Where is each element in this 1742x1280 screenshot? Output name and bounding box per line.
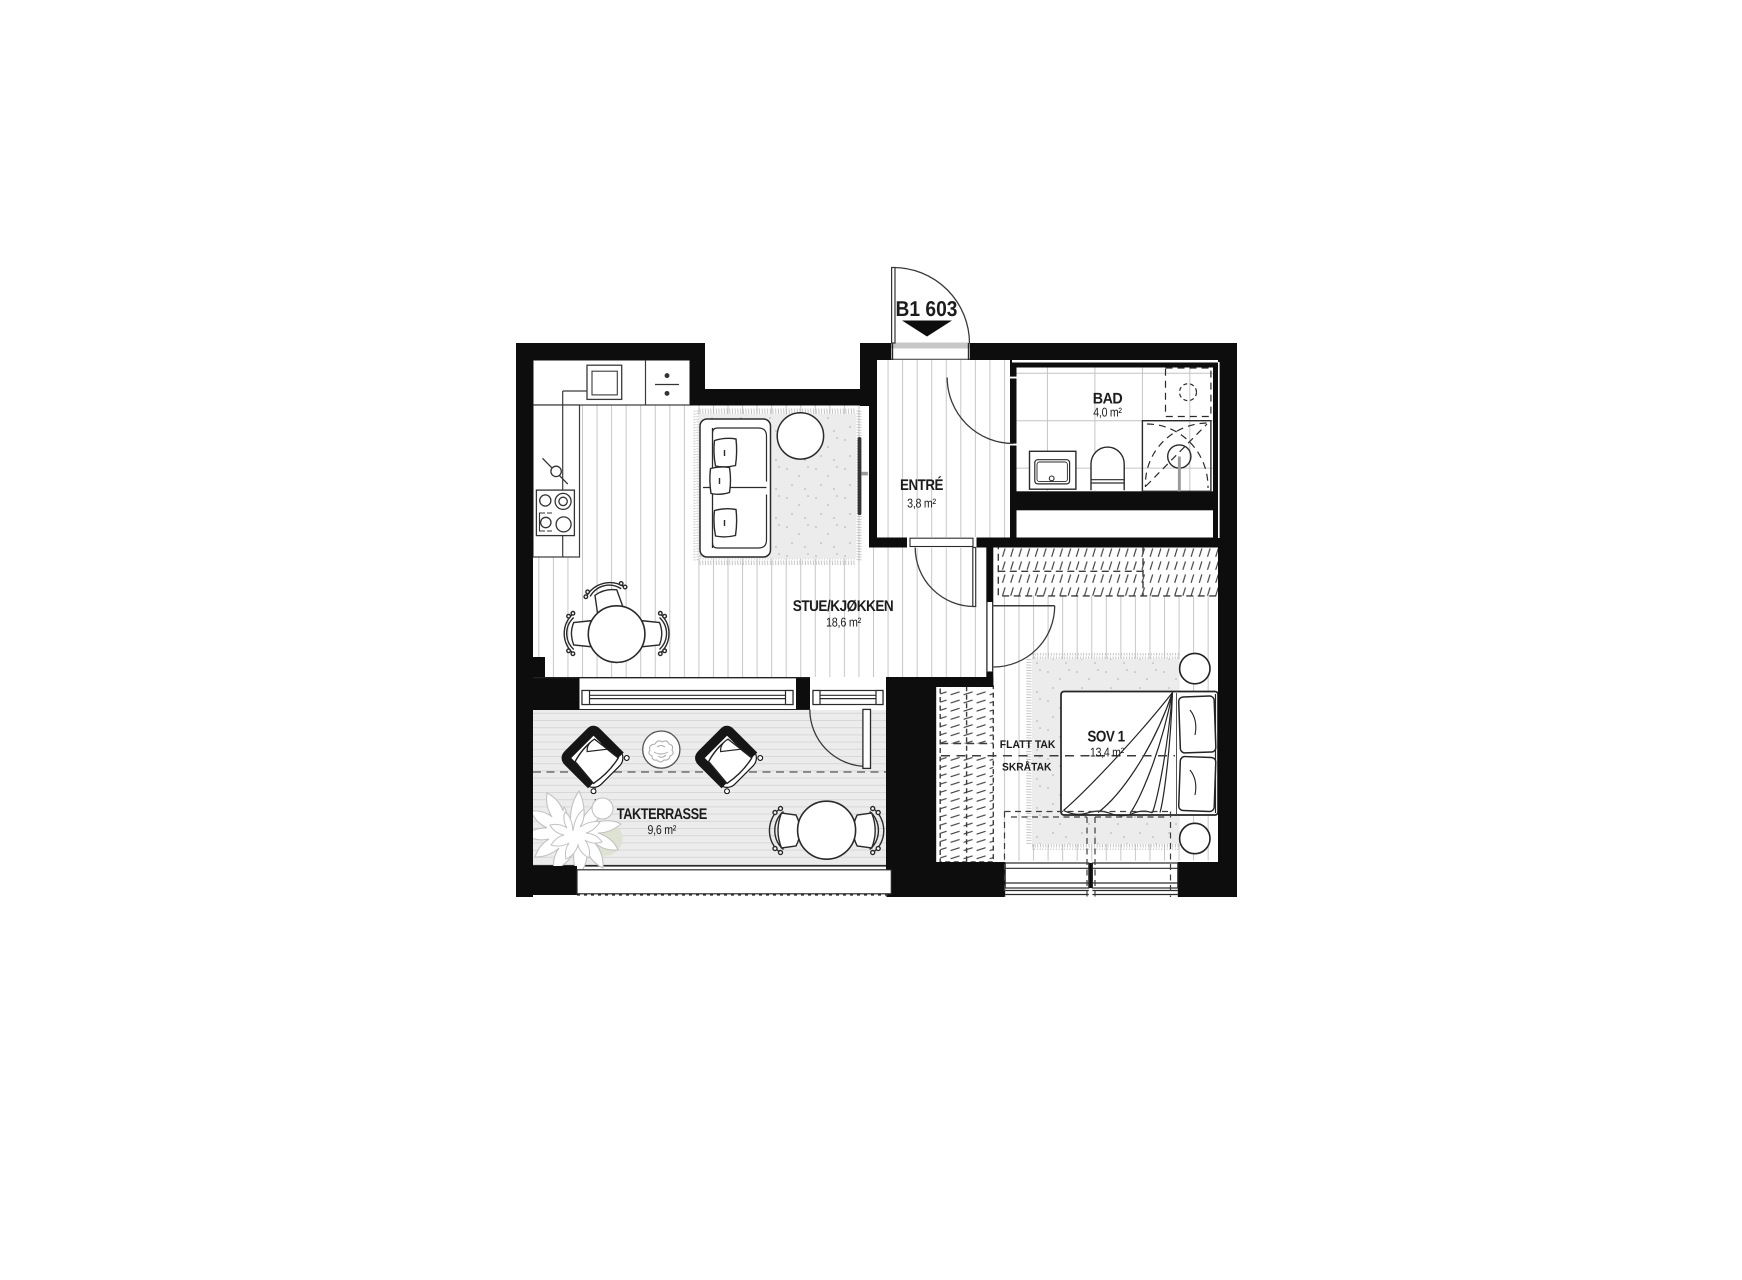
svg-text:18,6 m²: 18,6 m²	[826, 615, 862, 630]
svg-text:9,6 m²: 9,6 m²	[648, 822, 677, 837]
svg-text:FLATT TAK: FLATT TAK	[1000, 739, 1056, 751]
svg-text:3,8 m²: 3,8 m²	[907, 496, 937, 511]
svg-text:SKRÅTAK: SKRÅTAK	[1002, 761, 1051, 774]
svg-text:4,0 m²: 4,0 m²	[1093, 405, 1122, 420]
svg-text:ENTRÉ: ENTRÉ	[900, 476, 943, 494]
svg-text:SOV 1: SOV 1	[1087, 729, 1125, 746]
svg-text:13,4 m²: 13,4 m²	[1090, 745, 1125, 760]
svg-text:STUE/KJØKKEN: STUE/KJØKKEN	[793, 598, 894, 615]
svg-text:B1 603: B1 603	[896, 297, 958, 321]
svg-text:TAKTERRASSE: TAKTERRASSE	[617, 806, 707, 823]
